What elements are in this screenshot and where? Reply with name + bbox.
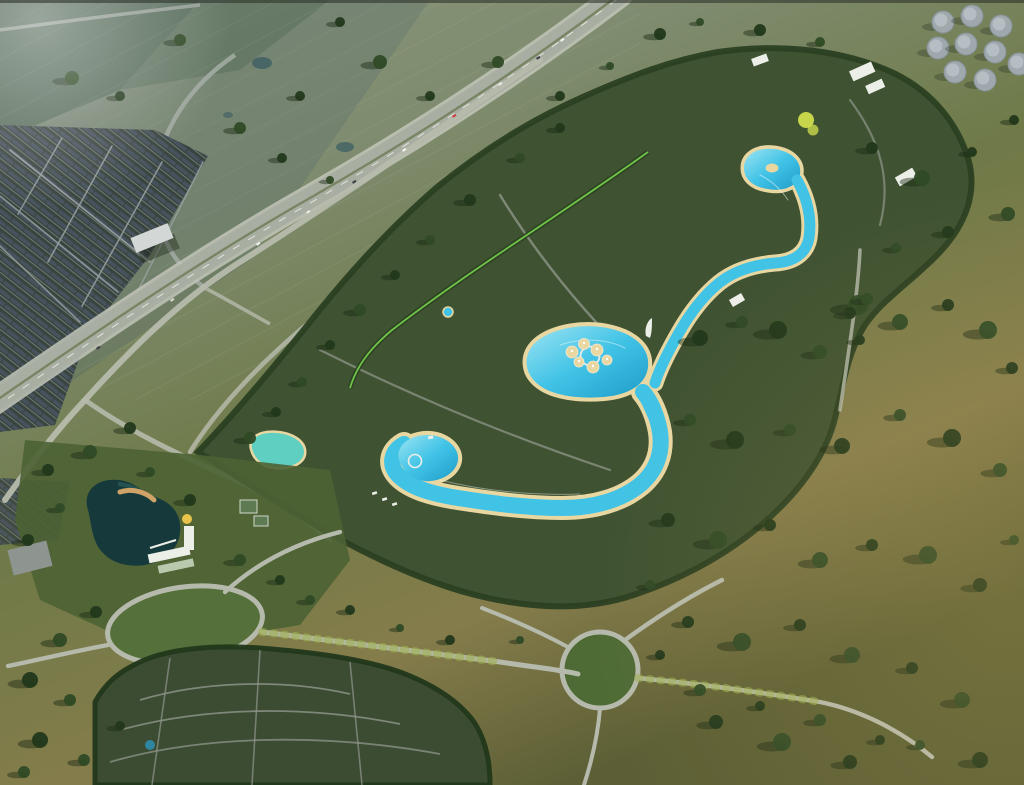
tree-cluster [515, 153, 525, 163]
tree-cluster [555, 123, 565, 133]
upper-lagoon-island [766, 164, 779, 173]
tree-cluster [32, 732, 48, 748]
tree-cluster [275, 575, 285, 585]
aerial-view [0, 0, 1024, 785]
island-structure [596, 348, 598, 350]
tree-cluster [244, 432, 256, 444]
tree-cluster [967, 147, 977, 157]
tree-cluster [815, 37, 825, 47]
tree-cluster [55, 503, 65, 513]
tree-cluster [78, 754, 90, 766]
tree-cluster [305, 595, 315, 605]
central-lagoon [527, 326, 649, 398]
tree-cluster [390, 270, 400, 280]
tree-cluster [53, 633, 67, 647]
tree-cluster [271, 407, 281, 417]
tree-cluster [425, 91, 435, 101]
tree-cluster [22, 672, 38, 688]
island-structure [592, 365, 594, 367]
tree-cluster [234, 122, 246, 134]
green-roof-building [240, 500, 257, 513]
storage-tank-top [964, 8, 977, 21]
tree-cluster [325, 340, 335, 350]
tree-cluster [234, 554, 246, 566]
tree-cluster [64, 694, 76, 706]
tree-cluster [345, 605, 355, 615]
tree-cluster [754, 24, 766, 36]
tree-cluster [1009, 115, 1019, 125]
green-roof-building [254, 516, 268, 526]
storage-tank-top [977, 72, 990, 85]
tree-cluster [22, 534, 34, 546]
storage-tank-top [930, 40, 943, 53]
frame-edge [0, 0, 1024, 3]
tree-cluster [914, 170, 930, 186]
tree-cluster [115, 721, 125, 731]
tree-cluster [696, 18, 704, 26]
storage-tank-top [947, 64, 960, 77]
island-structure [583, 342, 585, 344]
corridor-pool [443, 307, 453, 317]
tree-cluster [297, 377, 307, 387]
island-structure [578, 360, 580, 362]
tree-cluster [124, 422, 136, 434]
storage-tank-top [1011, 56, 1024, 69]
tree-cluster [83, 445, 97, 459]
tree-cluster [425, 235, 435, 245]
yellow-tree-cluster [808, 125, 819, 136]
island-structure [571, 350, 573, 352]
tree-cluster [373, 55, 387, 69]
tree-cluster [354, 304, 366, 316]
tree-cluster [654, 28, 666, 40]
tree-cluster [295, 91, 305, 101]
tower-building [184, 526, 194, 550]
tree-cluster [555, 91, 565, 101]
tree-cluster [184, 494, 196, 506]
tree-cluster [866, 142, 878, 154]
tree-cluster [145, 467, 155, 477]
storage-tank-top [987, 44, 1000, 57]
storage-tank-top [935, 14, 948, 27]
farm-pond [336, 142, 354, 152]
aerial-photo-stage [0, 0, 1024, 785]
tree-cluster [42, 464, 54, 476]
tree-cluster [277, 153, 287, 163]
village-pond [145, 740, 155, 750]
island-structure [606, 358, 608, 360]
tree-cluster [445, 635, 455, 645]
tree-cluster [18, 766, 30, 778]
tree-cluster [326, 176, 334, 184]
tree-cluster [492, 56, 504, 68]
storage-tank-top [958, 36, 971, 49]
tree-cluster [335, 17, 345, 27]
tree-cluster [516, 636, 524, 644]
tree-cluster [396, 624, 404, 632]
tree-cluster [464, 194, 476, 206]
storage-tank-top [993, 18, 1006, 31]
tree-cluster [90, 606, 102, 618]
gold-pavilion [182, 514, 192, 524]
tree-cluster [606, 62, 614, 70]
